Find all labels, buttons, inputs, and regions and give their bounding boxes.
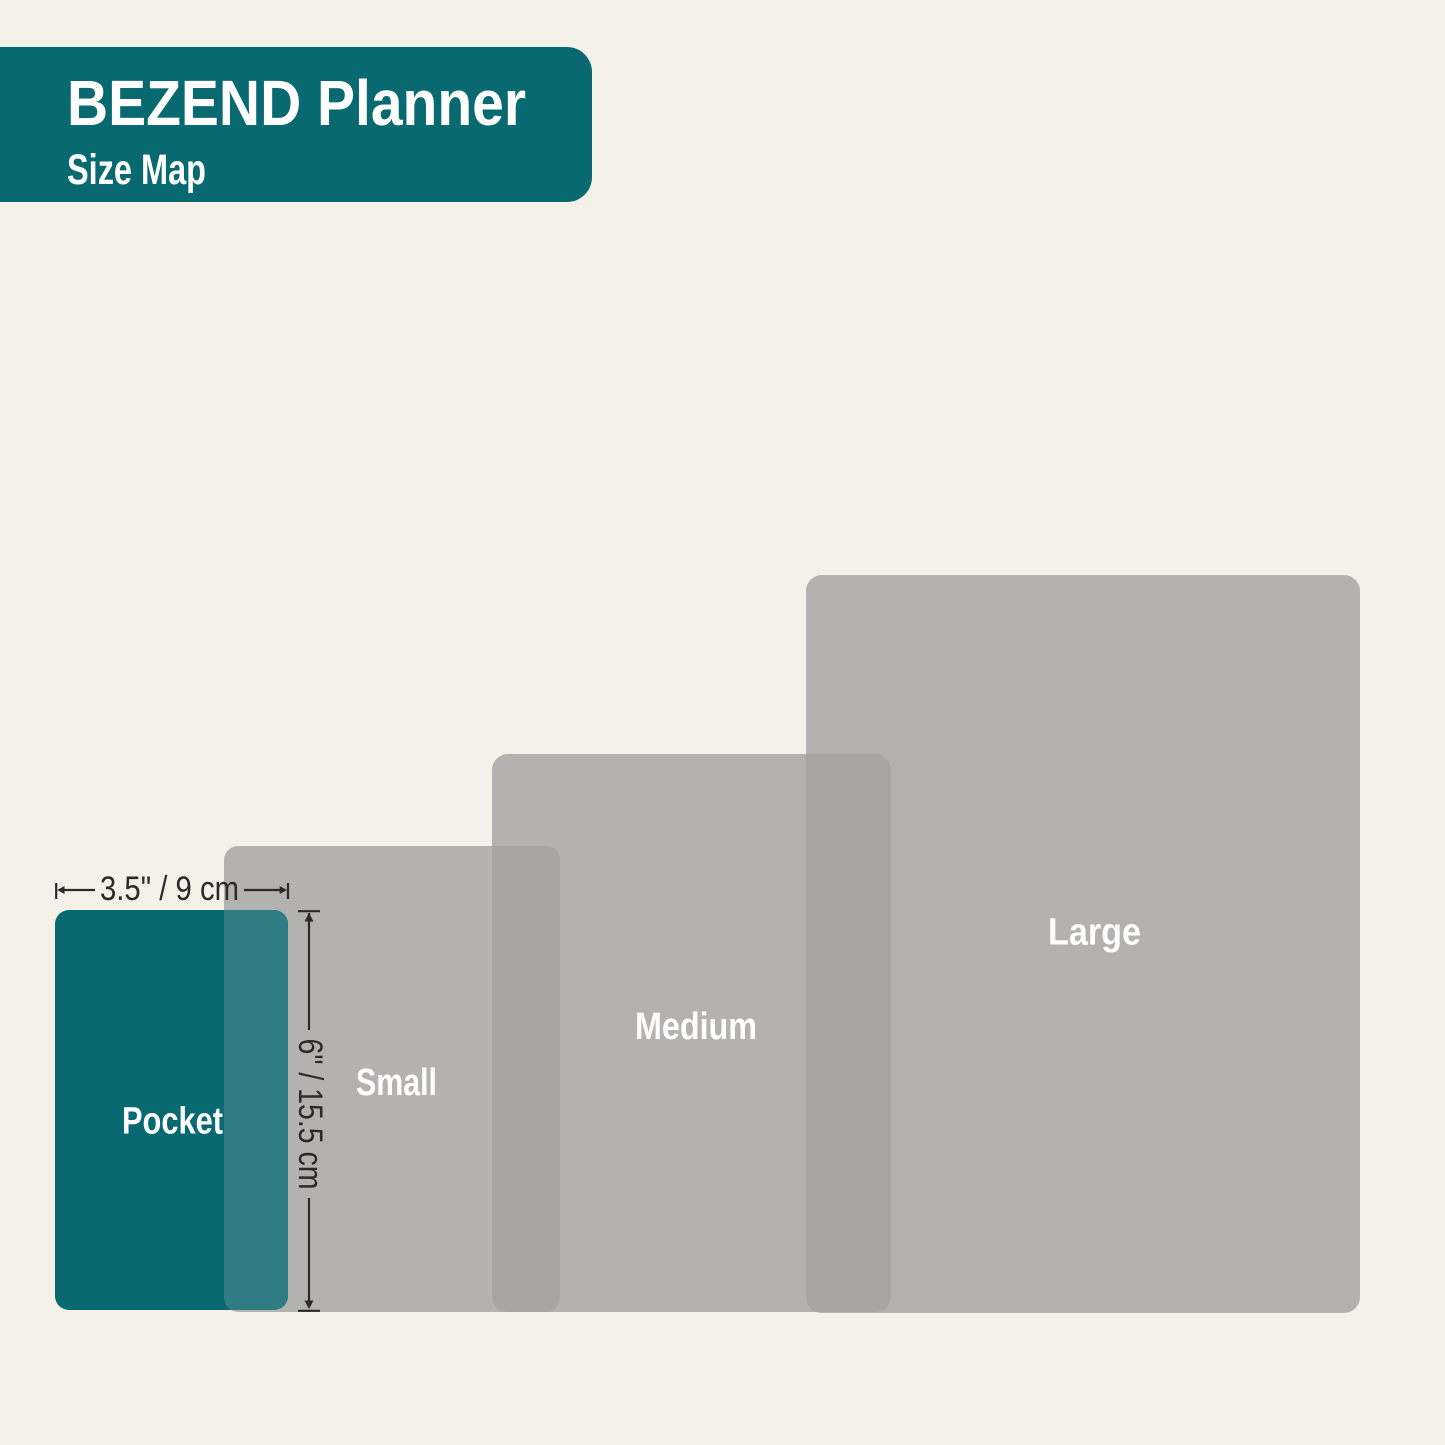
svg-text:Pocket: Pocket (122, 1101, 223, 1143)
svg-text:Small: Small (356, 1062, 437, 1104)
svg-text:Large: Large (1048, 912, 1141, 954)
svg-text:3.5" / 9 cm: 3.5" / 9 cm (100, 870, 239, 908)
svg-text:6" / 15.5 cm: 6" / 15.5 cm (291, 1039, 329, 1190)
svg-text:Medium: Medium (635, 1006, 757, 1048)
svg-text:BEZEND Planner: BEZEND Planner (67, 67, 526, 139)
svg-text:Size Map: Size Map (67, 146, 206, 194)
